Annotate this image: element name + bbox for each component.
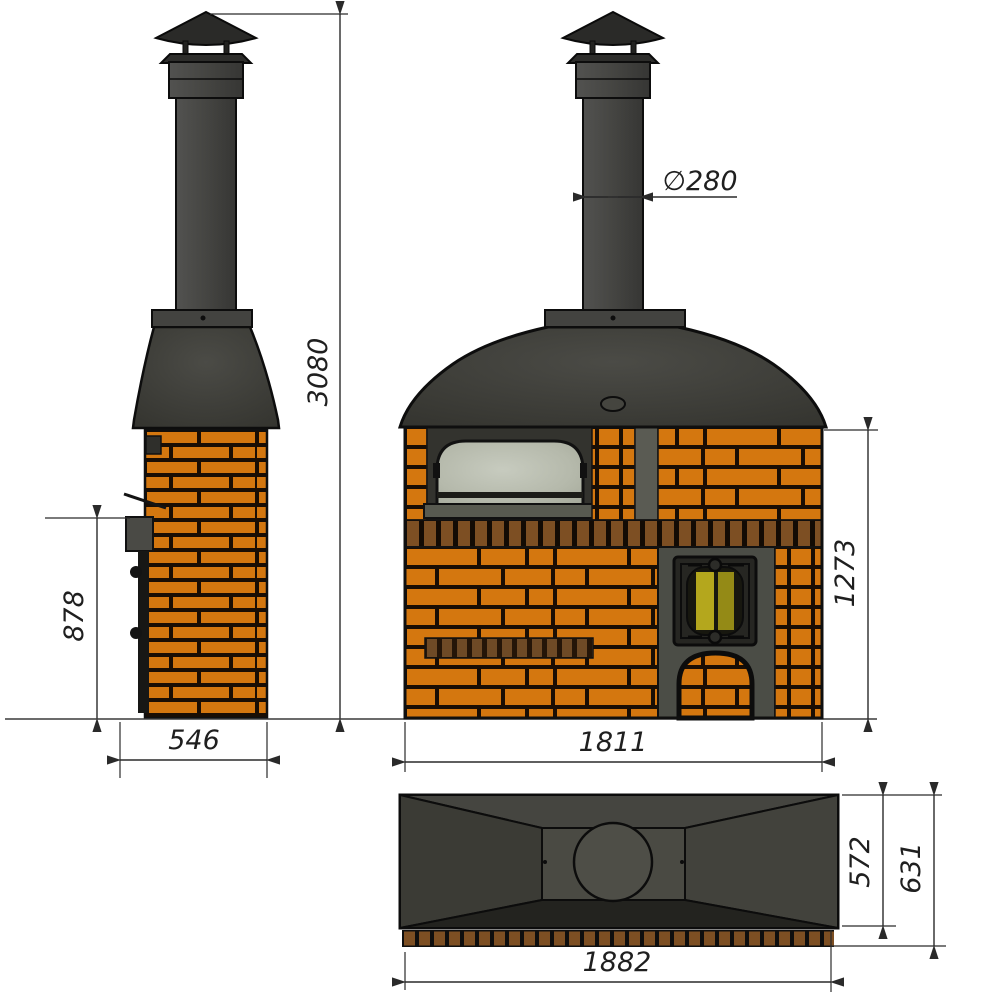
technical-drawing-canvas: 3080 878 546	[0, 0, 1000, 1000]
dimension-side-firebox-height: 878	[45, 518, 130, 719]
oven-hinge-right	[580, 463, 587, 478]
dim-label-front-width: 1811	[579, 727, 648, 758]
side-brick-column	[124, 430, 267, 718]
ash-arch-niche	[679, 653, 752, 718]
front-view: ∅280 1273 1811	[400, 12, 878, 772]
top-view-hood-plan	[400, 795, 838, 928]
fire-door-glass-left	[696, 572, 714, 630]
dimension-side-depth: 546	[120, 722, 267, 778]
front-chimney-cap-icon	[563, 12, 663, 63]
soldier-course-band	[405, 520, 822, 547]
oven-sill	[424, 504, 596, 518]
side-view: 3080 878 546	[45, 12, 348, 778]
oven-three-view-drawing: 3080 878 546	[0, 0, 1000, 1000]
dimension-front-masonry-height: 1273	[824, 430, 878, 719]
dim-label-overall-width: 1882	[583, 947, 652, 978]
top-view: 572 631 1882	[400, 795, 946, 992]
side-oven-frame-tab	[146, 436, 161, 454]
side-door-hinge-knob-bottom	[130, 627, 142, 639]
side-door-hinge-knob-top	[130, 566, 142, 578]
front-smoke-hood	[400, 310, 826, 427]
oven-mouth-door	[424, 427, 596, 520]
fire-door-hinge-top	[709, 559, 721, 571]
dimension-front-width: 1811	[405, 722, 822, 772]
side-chimney-pipe	[169, 62, 243, 310]
front-chimney-pipe	[576, 62, 650, 310]
side-chimney-cap-icon	[156, 12, 256, 63]
top-view-brick-edge	[402, 930, 834, 947]
dim-label-hood-depth: 572	[845, 836, 876, 888]
dim-label-total-height: 3080	[303, 338, 334, 407]
firebox-door-panel	[658, 547, 775, 718]
fire-door-glass-right	[718, 572, 734, 630]
hood-vent-icon	[601, 397, 625, 411]
dim-label-masonry-height: 1273	[830, 539, 861, 608]
dim-label-overall-depth: 631	[896, 842, 927, 894]
chimney-plan-circle	[574, 823, 652, 901]
center-pillar	[635, 427, 658, 520]
dim-label-chimney-diameter: ∅280	[662, 166, 737, 197]
fire-door-glass-frame	[687, 567, 743, 635]
dimension-top-hood-depth: 572	[842, 795, 942, 926]
dim-label-firebox-height: 878	[59, 590, 90, 642]
dim-label-depth: 546	[168, 725, 220, 756]
oven-hinge-left	[433, 463, 440, 478]
side-smoke-hood	[133, 310, 279, 428]
fire-door-hinge-bottom	[709, 631, 721, 643]
lower-soldier-band	[425, 638, 593, 658]
oven-door-rail	[437, 492, 583, 498]
side-damper-latch	[126, 517, 153, 551]
front-masonry-body	[405, 427, 822, 718]
